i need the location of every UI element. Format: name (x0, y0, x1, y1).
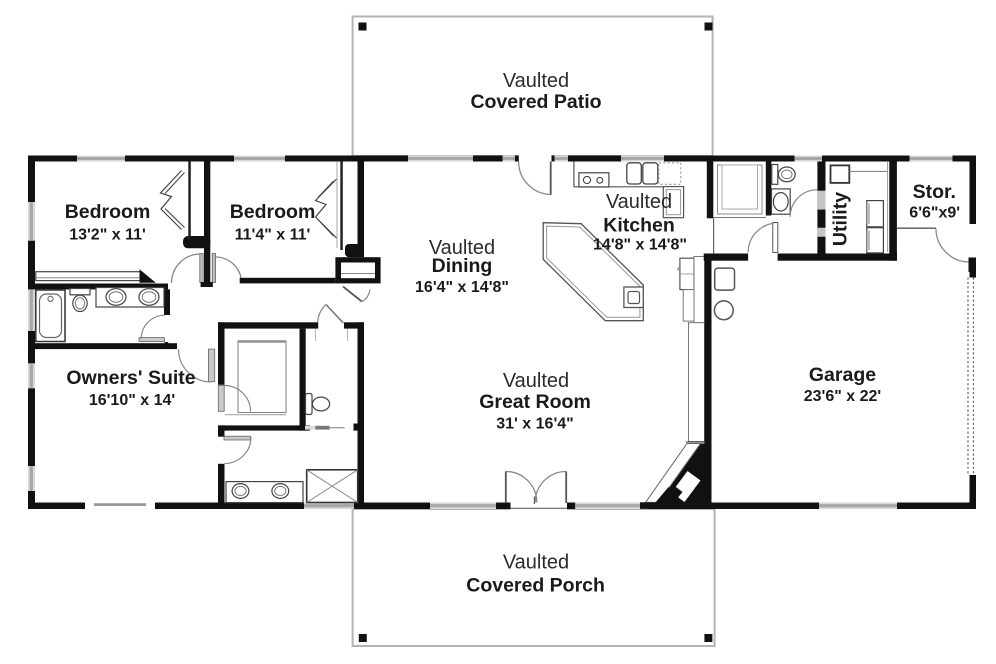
svg-text:Covered Patio: Covered Patio (470, 91, 601, 113)
svg-text:Great Room: Great Room (479, 391, 591, 413)
svg-text:Bedroom: Bedroom (230, 201, 316, 223)
svg-text:Garage: Garage (809, 364, 876, 386)
svg-text:Kitchen: Kitchen (603, 215, 675, 237)
svg-text:11'4" x 11': 11'4" x 11' (235, 227, 311, 244)
svg-text:Vaulted: Vaulted (503, 70, 569, 92)
svg-text:Covered Porch: Covered Porch (466, 575, 605, 597)
svg-text:6'6"x9': 6'6"x9' (909, 205, 960, 222)
svg-text:Vaulted: Vaulted (503, 370, 569, 392)
svg-text:16'4" x 14'8": 16'4" x 14'8" (415, 279, 509, 296)
svg-text:Bedroom: Bedroom (65, 201, 151, 223)
svg-text:31' x 16'4": 31' x 16'4" (496, 416, 573, 433)
svg-text:23'6" x 22': 23'6" x 22' (804, 388, 881, 405)
svg-text:14'8" x 14'8": 14'8" x 14'8" (593, 237, 687, 254)
svg-text:Vaulted: Vaulted (503, 552, 569, 574)
svg-text:Owners' Suite: Owners' Suite (66, 367, 195, 389)
svg-text:16'10" x 14': 16'10" x 14' (89, 392, 175, 409)
svg-text:Stor.: Stor. (913, 181, 956, 203)
svg-text:Utility: Utility (830, 192, 852, 246)
svg-text:Vaulted: Vaulted (606, 191, 672, 213)
svg-text:13'2" x 11': 13'2" x 11' (69, 227, 146, 244)
svg-text:Dining: Dining (432, 255, 493, 277)
